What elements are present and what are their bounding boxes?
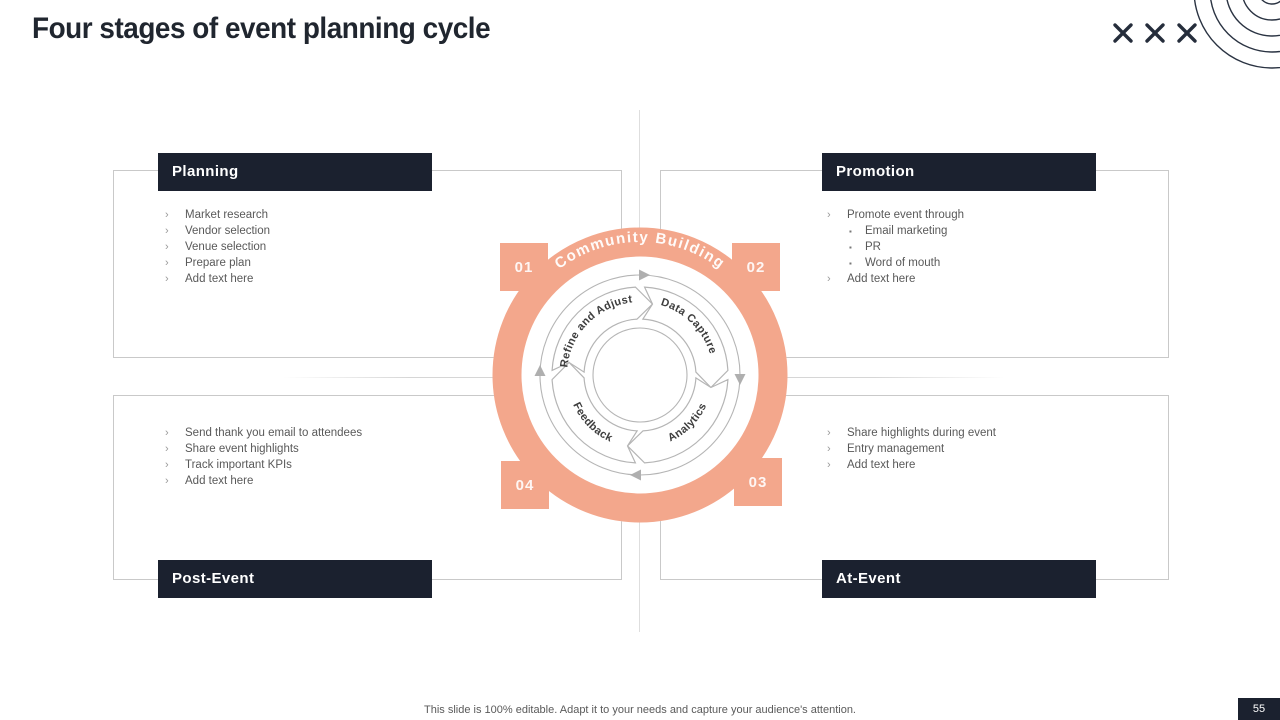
post-event-list: ›Send thank you email to attendees ›Shar… (165, 425, 362, 489)
list-item: ›Promote event through (827, 207, 964, 223)
list-item: ›Entry management (827, 441, 996, 457)
planning-header: Planning (158, 153, 432, 191)
concentric-arcs-decoration (1160, 0, 1280, 90)
chevron-bullet-icon: › (827, 457, 847, 473)
list-item: ›Track important KPIs (165, 457, 362, 473)
chevron-bullet-icon: › (827, 425, 847, 441)
list-subitem: ▪Email marketing (849, 223, 964, 239)
list-item: ›Venue selection (165, 239, 270, 255)
list-item: ›Market research (165, 207, 270, 223)
square-bullet-icon: ▪ (849, 239, 865, 255)
post-event-header: Post-Event (158, 560, 432, 598)
list-subitem: ▪Word of mouth (849, 255, 964, 271)
list-item: ›Add text here (827, 457, 996, 473)
chevron-bullet-icon: › (165, 239, 185, 255)
chevron-bullet-icon: › (165, 457, 185, 473)
stage-badge-04: 04 (501, 461, 549, 509)
footer-note: This slide is 100% editable. Adapt it to… (0, 704, 1280, 716)
list-subitem: ▪PR (849, 239, 964, 255)
chevron-bullet-icon: › (165, 425, 185, 441)
at-event-header: At-Event (822, 560, 1096, 598)
promotion-list: ›Promote event through ▪Email marketing … (827, 207, 964, 287)
list-item: ›Share highlights during event (827, 425, 996, 441)
page-number-badge: 55 (1238, 698, 1280, 720)
chevron-bullet-icon: › (827, 207, 847, 223)
list-item: ›Prepare plan (165, 255, 270, 271)
stage-badge-01: 01 (500, 243, 548, 291)
square-bullet-icon: ▪ (849, 223, 865, 239)
list-item: ›Send thank you email to attendees (165, 425, 362, 441)
square-bullet-icon: ▪ (849, 255, 865, 271)
at-event-list: ›Share highlights during event ›Entry ma… (827, 425, 996, 473)
left-horizontal-guide (283, 377, 495, 378)
stage-badge-03: 03 (734, 458, 782, 506)
chevron-bullet-icon: › (827, 271, 847, 287)
planning-list: ›Market research ›Vendor selection ›Venu… (165, 207, 270, 287)
chevron-bullet-icon: › (165, 207, 185, 223)
promotion-header: Promotion (822, 153, 1096, 191)
list-item: ›Add text here (165, 271, 270, 287)
cycle-hub (593, 328, 687, 422)
chevron-bullet-icon: › (165, 223, 185, 239)
list-item: ›Add text here (827, 271, 964, 287)
slide-title: Four stages of event planning cycle (32, 12, 490, 46)
list-item: ›Add text here (165, 473, 362, 489)
stage-badge-02: 02 (732, 243, 780, 291)
right-horizontal-guide (787, 377, 1005, 378)
chevron-bullet-icon: › (827, 441, 847, 457)
chevron-bullet-icon: › (165, 441, 185, 457)
chevron-bullet-icon: › (165, 473, 185, 489)
chevron-bullet-icon: › (165, 271, 185, 287)
chevron-bullet-icon: › (165, 255, 185, 271)
list-item: ›Share event highlights (165, 441, 362, 457)
list-item: ›Vendor selection (165, 223, 270, 239)
